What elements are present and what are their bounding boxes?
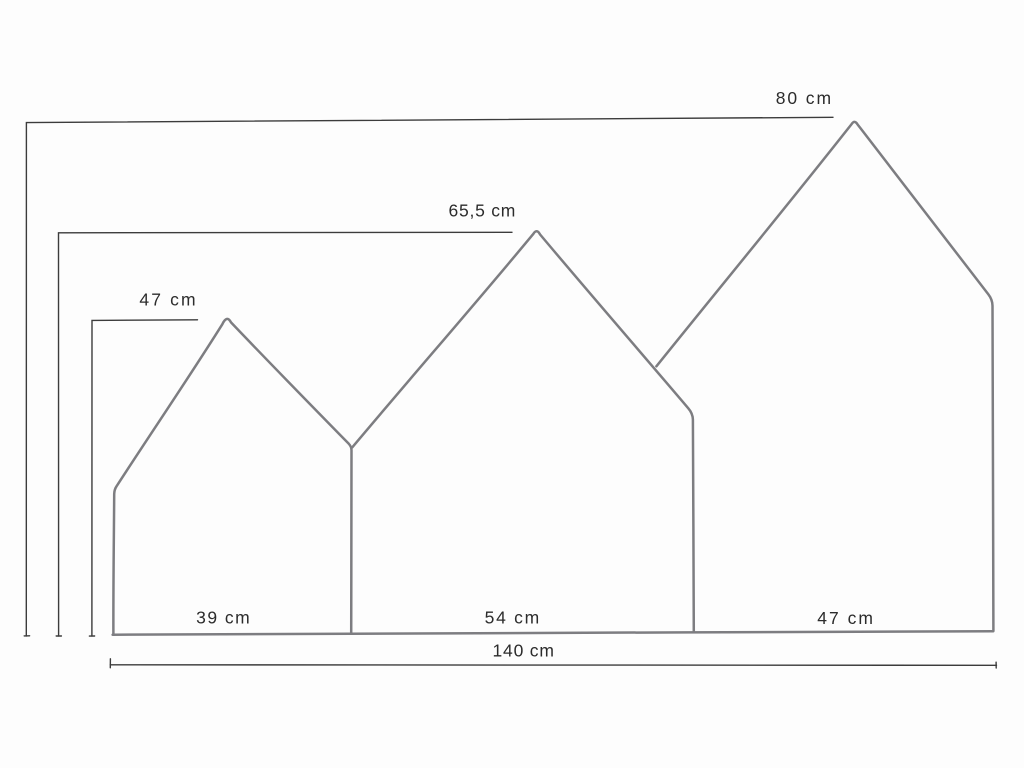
- svg-text:140 cm: 140 cm: [493, 641, 555, 661]
- svg-text:65,5 cm: 65,5 cm: [449, 200, 516, 220]
- svg-text:47 cm: 47 cm: [817, 608, 873, 628]
- svg-text:54 cm: 54 cm: [485, 608, 540, 628]
- svg-text:47 cm: 47 cm: [139, 289, 195, 309]
- svg-text:39 cm: 39 cm: [196, 608, 250, 628]
- svg-text:80 cm: 80 cm: [776, 88, 832, 108]
